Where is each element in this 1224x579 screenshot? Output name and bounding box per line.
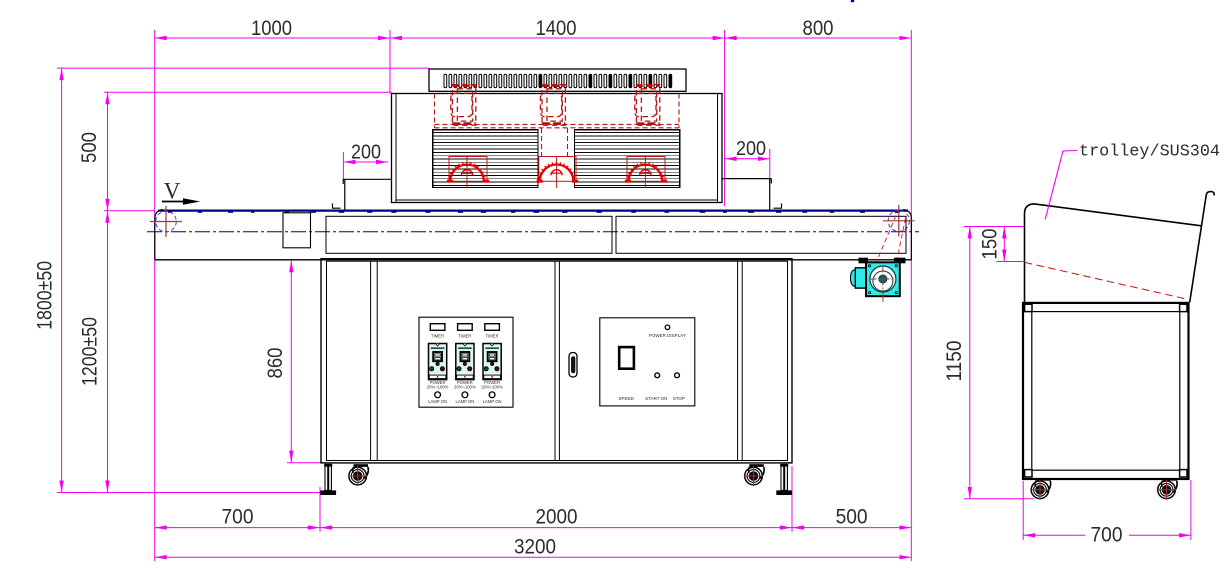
svg-text:20%~100%: 20%~100% [454, 384, 476, 389]
svg-text:20%~100%: 20%~100% [427, 384, 449, 389]
svg-text:1400: 1400 [536, 16, 577, 40]
svg-text:700: 700 [1091, 523, 1123, 547]
svg-text:SPEED: SPEED [618, 396, 634, 401]
svg-text:3200: 3200 [514, 535, 556, 559]
svg-text:700: 700 [222, 505, 254, 529]
svg-text:TIMER: TIMER [486, 334, 499, 339]
svg-text:20%~100%: 20%~100% [481, 384, 503, 389]
svg-text:LAMP ON: LAMP ON [428, 399, 447, 404]
svg-text:800: 800 [803, 16, 834, 40]
svg-text:trolley/SUS304: trolley/SUS304 [1079, 143, 1220, 162]
svg-text:START ON: START ON [645, 396, 667, 401]
svg-text:1000: 1000 [251, 16, 292, 40]
svg-text:500: 500 [77, 132, 101, 163]
svg-text:1800±50: 1800±50 [33, 261, 57, 330]
svg-text:2000: 2000 [536, 505, 578, 529]
svg-text:TIMER: TIMER [431, 334, 444, 339]
svg-text:POWER DISPLAY: POWER DISPLAY [649, 333, 686, 338]
svg-text:200: 200 [736, 137, 766, 160]
svg-text:LAMP ON: LAMP ON [456, 399, 475, 404]
svg-text:200: 200 [351, 141, 381, 164]
svg-text:1150: 1150 [942, 340, 966, 381]
svg-text:V: V [164, 179, 181, 204]
svg-text:500: 500 [836, 505, 868, 529]
svg-text:STOP: STOP [673, 396, 685, 401]
svg-text:150: 150 [978, 228, 1002, 259]
svg-text:1200±50: 1200±50 [78, 317, 102, 386]
svg-text:860: 860 [263, 347, 287, 378]
svg-text:TIMER: TIMER [458, 334, 471, 339]
svg-text:LAMP ON: LAMP ON [483, 399, 502, 404]
